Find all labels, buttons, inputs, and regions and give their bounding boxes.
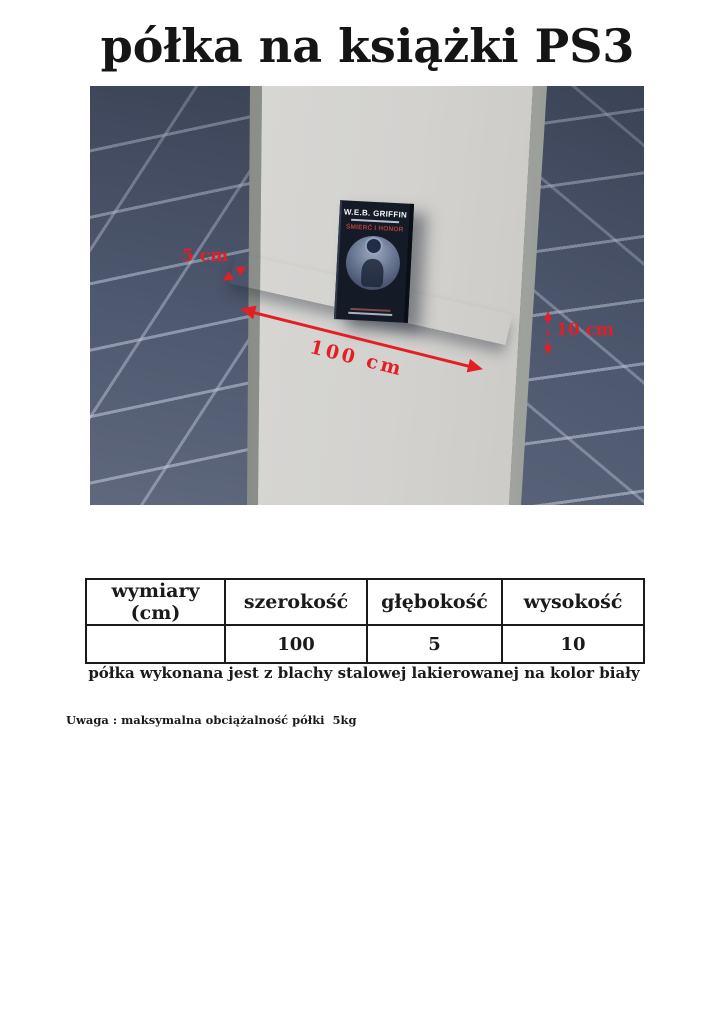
header-szerokosc: szerokość <box>225 579 367 625</box>
dimensions-table: wymiary (cm) szerokość głębokość wysokoś… <box>85 578 645 664</box>
book-author-text: W.E.B. GRIFFIN <box>344 207 408 219</box>
book-on-shelf: W.E.B. GRIFFIN ŚMIERĆ I HONOR <box>334 200 414 323</box>
product-photo: W.E.B. GRIFFIN ŚMIERĆ I HONOR 5 cm 100 c… <box>90 86 644 505</box>
book-cover-art <box>345 235 402 292</box>
book-title-text: ŚMIERĆ I HONOR <box>346 223 404 234</box>
header-glebokosc: głębokość <box>367 579 502 625</box>
cell-depth-value: 5 <box>367 625 502 663</box>
dimension-depth-label: 5 cm <box>182 246 228 266</box>
arrowhead-down-icon <box>544 346 552 355</box>
book-footer-bar <box>348 312 393 316</box>
cell-height-value: 10 <box>502 625 644 663</box>
dimension-height-arrow <box>542 311 554 355</box>
material-caption: półka wykonana jest z blachy stalowej la… <box>85 664 643 682</box>
page-title: półka na książki PS3 <box>10 18 725 74</box>
book-subline <box>351 219 399 223</box>
table-row: 100 5 10 <box>86 625 644 663</box>
spec-sheet-page: półka na książki PS3 W.E.B. GRIFFIN ŚMIE… <box>0 0 725 1024</box>
table-header-row: wymiary (cm) szerokość głębokość wysokoś… <box>86 579 644 625</box>
header-wymiary: wymiary (cm) <box>86 579 225 625</box>
cell-empty <box>86 625 225 663</box>
book-footer <box>336 307 404 317</box>
max-load-note: Uwaga : maksymalna obciążalność półki 5k… <box>66 713 357 727</box>
arrow-dashed-line <box>547 319 549 347</box>
header-wysokosc: wysokość <box>502 579 644 625</box>
dimension-height-label: 10 cm <box>556 320 614 340</box>
cell-width-value: 100 <box>225 625 367 663</box>
